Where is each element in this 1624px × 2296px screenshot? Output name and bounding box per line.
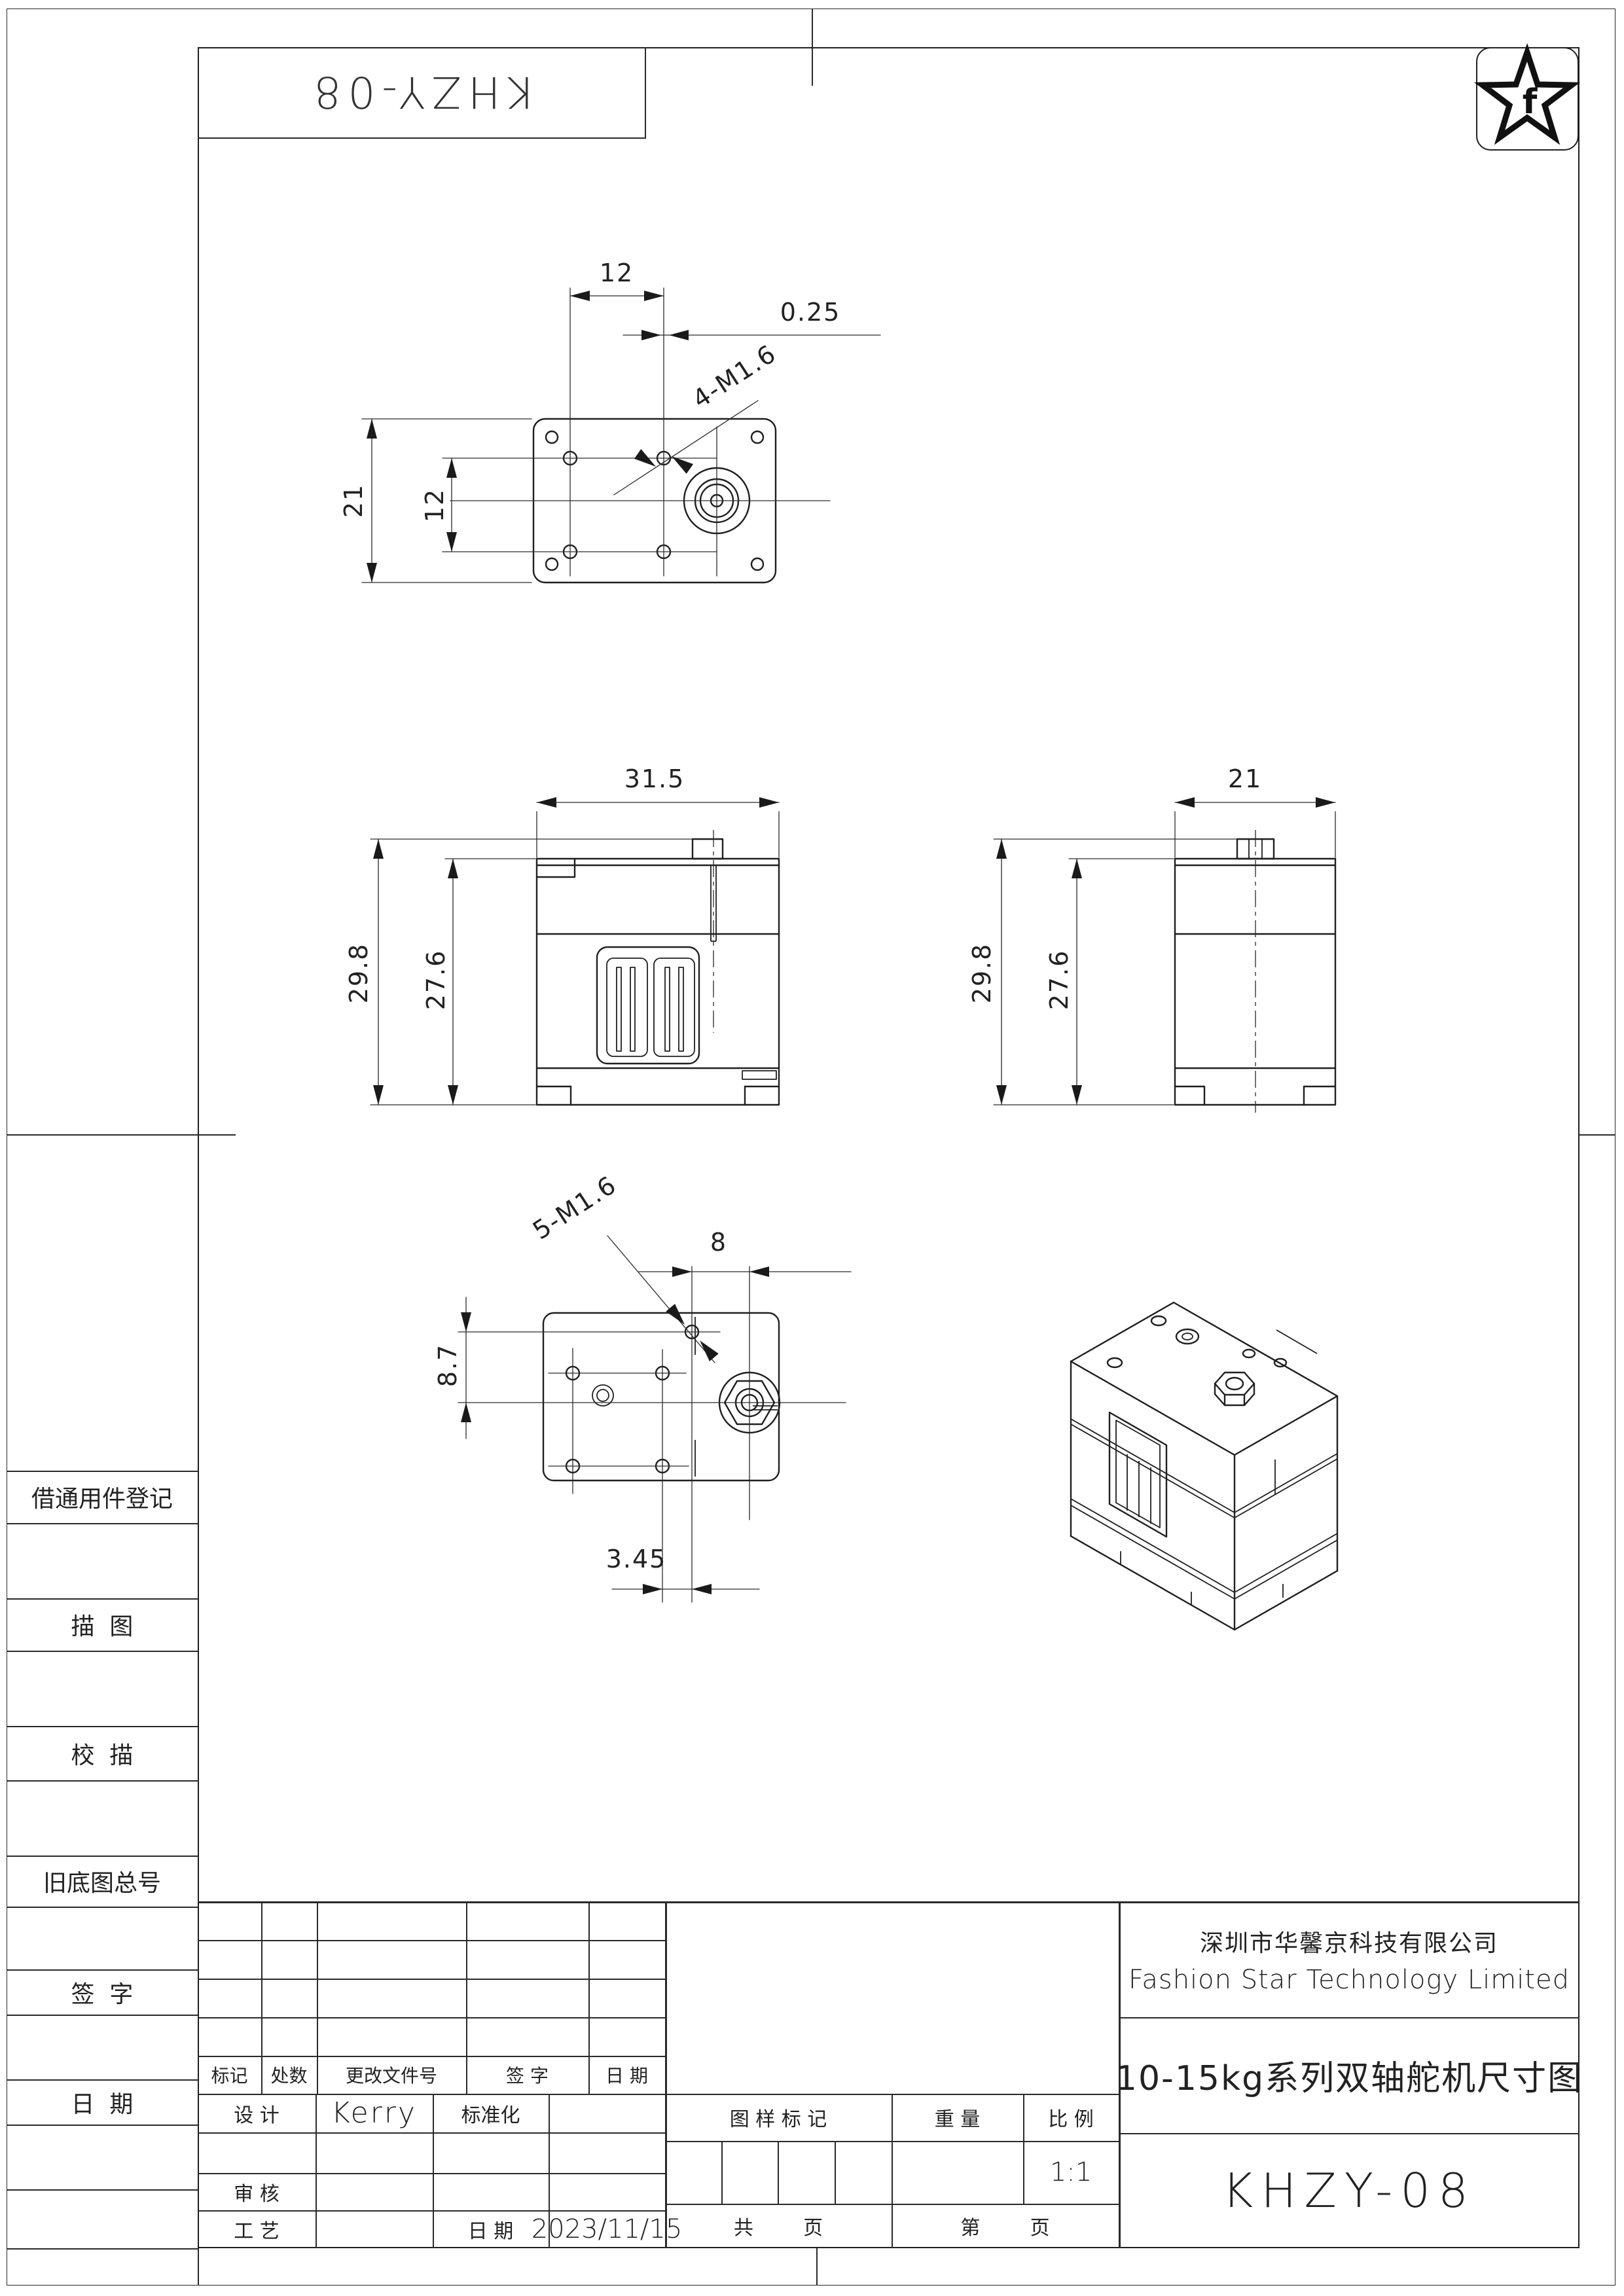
drawing-code-stamp: KHZY-08 [198,47,645,137]
process-label: 工 艺 [198,2210,316,2248]
company-block: 深圳市华馨京科技有限公司 Fashion Star Technology Lim… [1119,1901,1579,2017]
center-mark-top [812,9,813,86]
pages-total-label: 共 页 [665,2204,892,2248]
top-dim-hole-spacing-y: 12 [420,488,449,522]
sidebar-signature: 签 字 [7,1969,198,2015]
standardization-label: 标准化 [433,2094,549,2132]
bottom-dim-col-offset: 3.45 [606,1545,667,1573]
bottom-dim-shaft-offset: 8 [710,1228,727,1257]
center-mark-bottom [816,2248,818,2286]
side-dim-body-height: 27.6 [1045,950,1074,1011]
scale-label: 比 例 [1023,2094,1119,2141]
top-dim-hole-spacing-x: 12 [600,259,634,287]
weight-label: 重 量 [892,2094,1023,2141]
audit-label: 审 核 [198,2173,316,2210]
designer-name: Kerry [316,2094,433,2132]
drawing-sheet: KHZY-08 f [0,0,1624,2296]
logo-box [1476,47,1579,151]
sidebar-old-master-no: 旧底图总号 [7,1856,198,1907]
front-dim-width: 31.5 [624,764,685,793]
sidebar-tracing: 描 图 [7,1598,198,1651]
center-mark-right [1579,1134,1615,1136]
side-dim-total-height: 29.8 [967,943,996,1004]
stamp-label: 图 样 标 记 [665,2094,892,2141]
bottom-dim-row-offset: 8.7 [433,1344,462,1387]
sidebar-check-tracing: 校 描 [7,1726,198,1780]
sidebar-borrow-register: 借通用件登记 [7,1471,198,1523]
company-name-en: Fashion Star Technology Limited [1128,1965,1570,1995]
top-dim-height: 21 [339,484,368,518]
design-label: 设 计 [198,2094,316,2132]
rev-header-date: 日 期 [588,2056,665,2094]
rev-header-signature: 签 字 [466,2056,588,2094]
side-dim-width: 21 [1228,764,1262,793]
rev-header-count: 处数 [261,2056,317,2094]
drawing-title: 10-15kg系列双轴舵机尺寸图 [1119,2017,1579,2133]
top-dim-offset: 0.25 [780,298,841,327]
center-mark-left [7,1134,236,1136]
drawing-number: KHZY-08 [1119,2133,1579,2248]
scale-value: 1:1 [1023,2141,1119,2204]
front-dim-body-height: 27.6 [422,950,450,1011]
date-value: 2023/11/15 [549,2210,665,2248]
page-no-label: 第 页 [892,2204,1119,2248]
front-dim-total-height: 29.8 [344,943,373,1004]
rev-header-file-no: 更改文件号 [317,2056,466,2094]
company-name-cn: 深圳市华馨京科技有限公司 [1200,1924,1498,1958]
sidebar-date: 日 期 [7,2079,198,2125]
rev-header-mark: 标记 [198,2056,261,2094]
